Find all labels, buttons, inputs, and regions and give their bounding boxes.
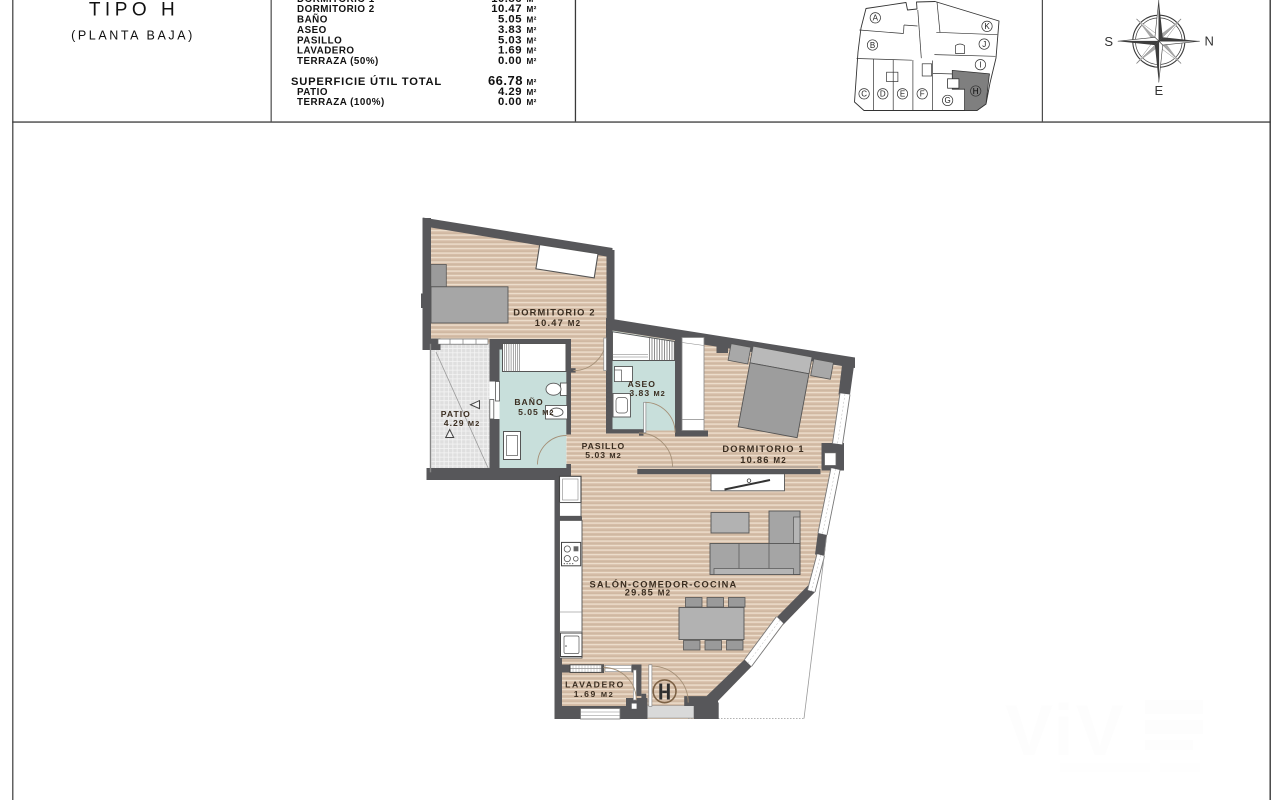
svg-text:1.69 M2: 1.69 M2 xyxy=(574,689,615,699)
svg-text:E: E xyxy=(1154,83,1163,98)
svg-text:TERRAZA (100%): TERRAZA (100%) xyxy=(297,97,385,108)
svg-text:N: N xyxy=(1205,34,1214,49)
svg-text:DORMITORIO 2: DORMITORIO 2 xyxy=(513,308,595,318)
svg-text:TIPO H: TIPO H xyxy=(89,0,179,21)
svg-text:M²: M² xyxy=(527,5,537,14)
svg-text:10.86 M2: 10.86 M2 xyxy=(740,455,787,465)
svg-text:5.03 M2: 5.03 M2 xyxy=(585,450,621,460)
svg-text:M²: M² xyxy=(527,57,537,66)
svg-text:(PLANTA BAJA): (PLANTA BAJA) xyxy=(71,29,195,43)
svg-text:BAÑO: BAÑO xyxy=(514,397,543,407)
svg-text:5.05 M2: 5.05 M2 xyxy=(518,407,554,417)
svg-text:B: B xyxy=(870,41,875,50)
svg-text:66.78: 66.78 xyxy=(488,73,523,88)
svg-text:ViV: ViV xyxy=(1005,691,1126,771)
svg-text:H: H xyxy=(973,87,979,96)
svg-text:I: I xyxy=(979,61,981,70)
svg-text:K: K xyxy=(984,22,990,31)
svg-text:M²: M² xyxy=(527,36,537,45)
svg-text:0.00: 0.00 xyxy=(498,55,522,67)
svg-text:3.83 M2: 3.83 M2 xyxy=(629,388,665,398)
svg-text:BAÑO: BAÑO xyxy=(297,14,328,25)
svg-text:F: F xyxy=(920,90,925,99)
svg-text:SUPERFICIE ÚTIL TOTAL: SUPERFICIE ÚTIL TOTAL xyxy=(291,75,442,88)
svg-text:DORMITORIO 1: DORMITORIO 1 xyxy=(722,444,804,454)
svg-text:D: D xyxy=(880,90,886,99)
svg-text:C: C xyxy=(861,90,867,99)
svg-text:J: J xyxy=(982,40,986,49)
svg-text:M²: M² xyxy=(527,26,537,35)
svg-text:0.00: 0.00 xyxy=(498,96,522,108)
svg-text:M²: M² xyxy=(527,78,537,87)
svg-text:DORMITORIO 2: DORMITORIO 2 xyxy=(297,4,375,15)
svg-text:LAVADERO: LAVADERO xyxy=(565,680,625,690)
svg-text:M²: M² xyxy=(527,0,537,4)
svg-text:M²: M² xyxy=(527,47,537,56)
svg-text:10.47 M2: 10.47 M2 xyxy=(535,318,582,328)
svg-text:M²: M² xyxy=(527,98,537,107)
svg-text:4.29 M2: 4.29 M2 xyxy=(444,418,480,428)
svg-text:S: S xyxy=(1104,34,1113,49)
svg-text:G: G xyxy=(944,96,950,105)
svg-text:29.85 M2: 29.85 M2 xyxy=(625,588,672,598)
svg-text:E: E xyxy=(900,90,905,99)
svg-text:TERRAZA (50%): TERRAZA (50%) xyxy=(297,56,379,67)
svg-text:A: A xyxy=(873,14,879,23)
svg-text:M²: M² xyxy=(527,88,537,97)
svg-text:M²: M² xyxy=(527,15,537,24)
svg-text:ASEO: ASEO xyxy=(297,25,327,36)
